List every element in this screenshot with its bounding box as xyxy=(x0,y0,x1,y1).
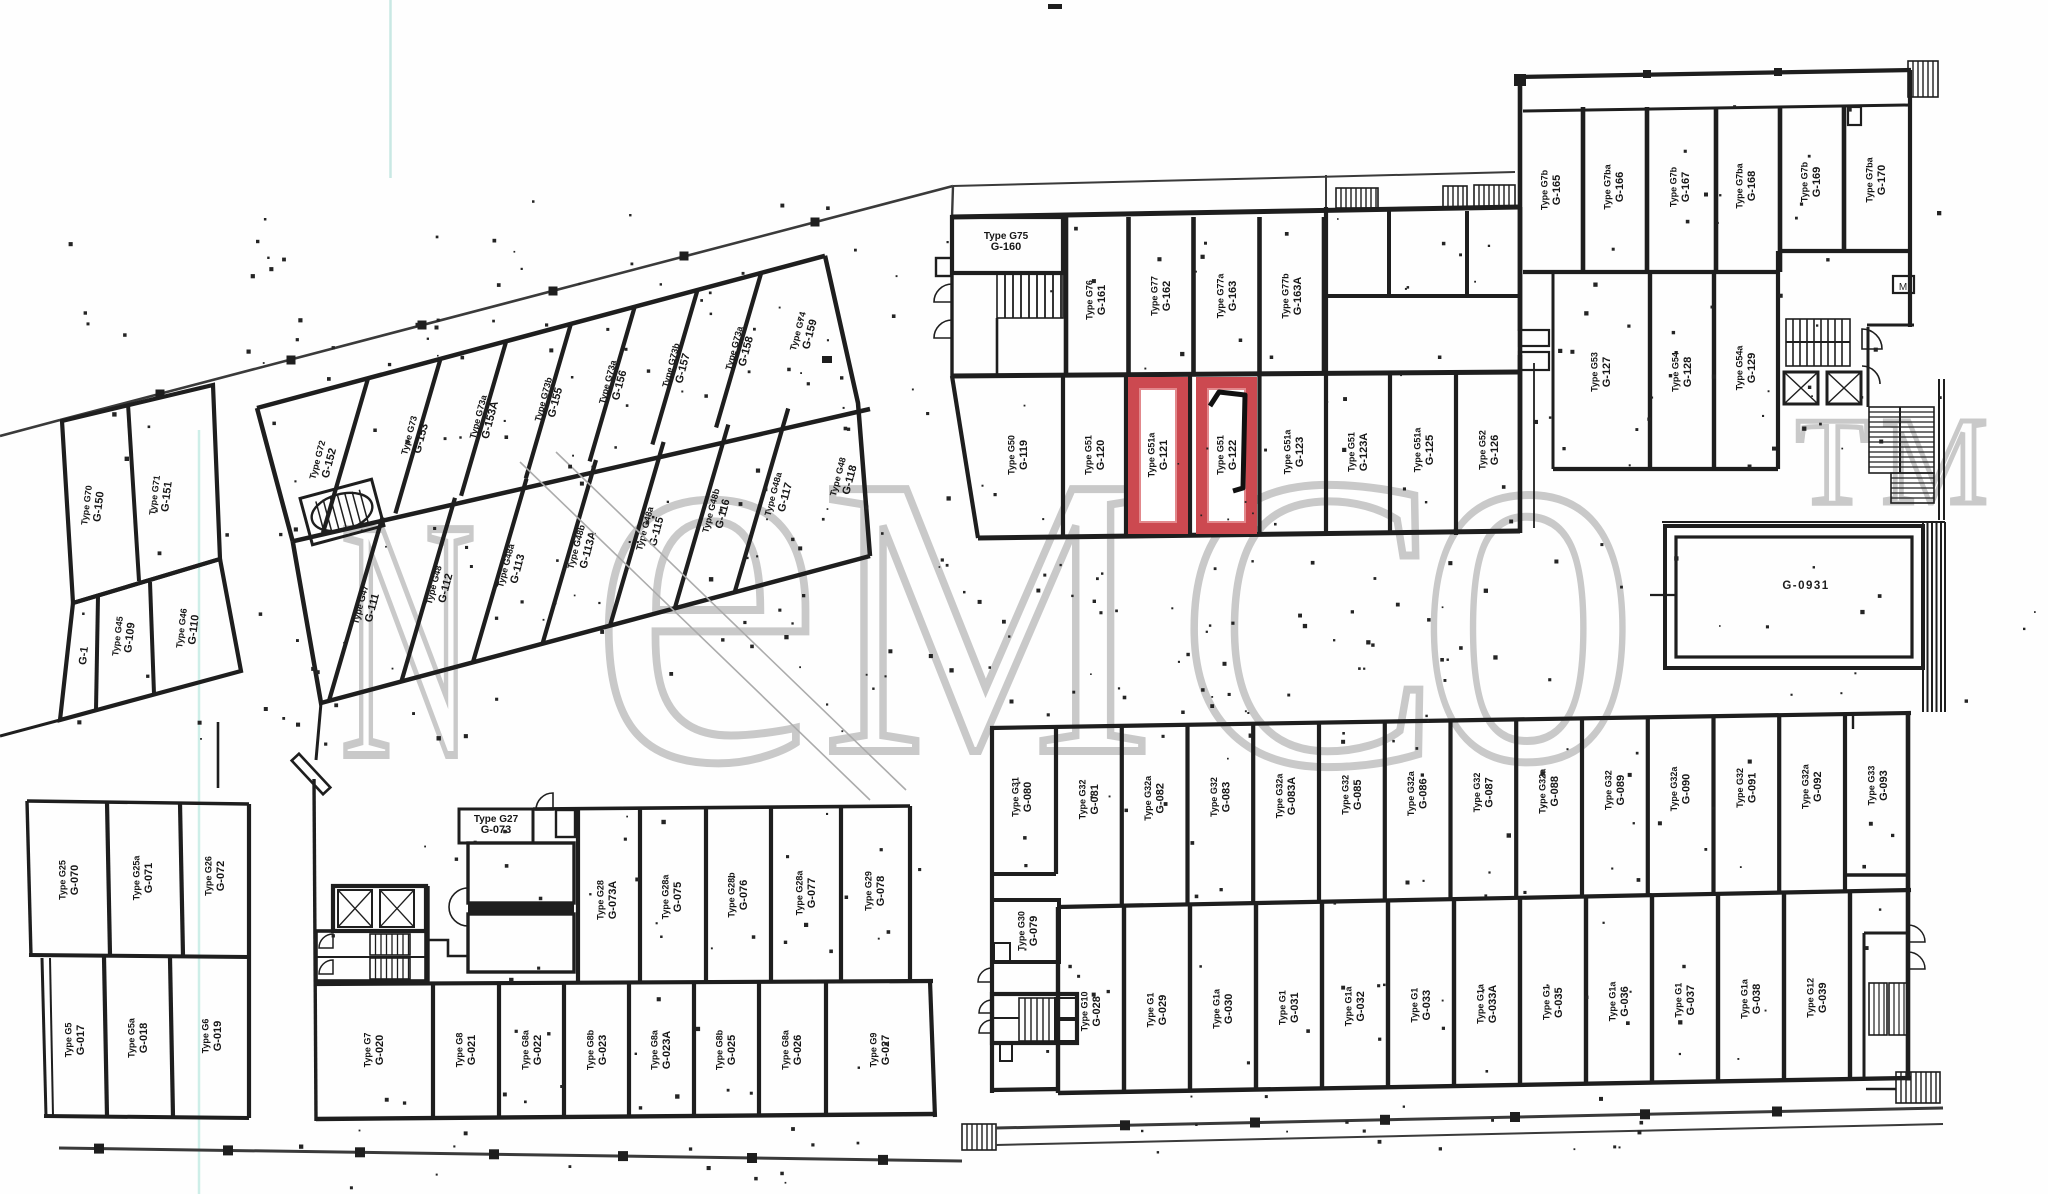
svg-text:Type G7b: Type G7b xyxy=(1540,169,1550,210)
svg-text:Type G7b: Type G7b xyxy=(1800,161,1810,202)
svg-text:G-087: G-087 xyxy=(1483,777,1495,808)
svg-text:G-126: G-126 xyxy=(1489,435,1501,466)
svg-text:Type G7b: Type G7b xyxy=(1669,166,1679,207)
svg-text:G-072: G-072 xyxy=(215,861,227,892)
svg-text:G-026: G-026 xyxy=(792,1035,804,1066)
svg-text:Type G1a: Type G1a xyxy=(1608,981,1618,1022)
svg-text:Type G32a: Type G32a xyxy=(1143,775,1153,821)
svg-text:G-029: G-029 xyxy=(1157,995,1169,1026)
svg-text:Type G25: Type G25 xyxy=(58,860,68,900)
svg-text:G-027: G-027 xyxy=(880,1035,892,1066)
svg-text:G-073A: G-073A xyxy=(607,881,619,920)
svg-text:G-083A: G-083A xyxy=(1286,777,1298,816)
svg-text:Type G25a: Type G25a xyxy=(132,855,142,901)
svg-text:Type G26: Type G26 xyxy=(204,856,214,896)
svg-text:G-163: G-163 xyxy=(1227,281,1239,312)
svg-text:G-090: G-090 xyxy=(1681,774,1693,805)
svg-text:G-032: G-032 xyxy=(1355,991,1367,1022)
svg-text:G-023: G-023 xyxy=(597,1035,609,1066)
svg-text:Type G1: Type G1 xyxy=(1278,990,1288,1025)
svg-text:G-028: G-028 xyxy=(1091,996,1103,1027)
svg-text:Type G52: Type G52 xyxy=(1478,430,1488,470)
svg-text:Type G1: Type G1 xyxy=(1542,985,1552,1020)
svg-text:Type G1: Type G1 xyxy=(1674,983,1684,1018)
svg-text:G-076: G-076 xyxy=(738,880,750,911)
svg-text:G-081: G-081 xyxy=(1089,784,1101,815)
svg-text:Type G32: Type G32 xyxy=(1735,768,1745,808)
svg-text:G-020: G-020 xyxy=(374,1035,386,1066)
svg-text:G-120: G-120 xyxy=(1095,440,1107,471)
svg-text:Type G32a: Type G32a xyxy=(1275,773,1285,819)
svg-text:Type G8b: Type G8b xyxy=(586,1029,596,1070)
svg-text:G-128: G-128 xyxy=(1682,357,1694,388)
svg-text:G-162: G-162 xyxy=(1161,281,1173,312)
svg-text:G-122: G-122 xyxy=(1227,440,1239,471)
svg-text:Type G1: Type G1 xyxy=(1146,993,1156,1028)
svg-text:G-038: G-038 xyxy=(1751,984,1763,1015)
svg-text:G-121: G-121 xyxy=(1158,440,1170,471)
svg-text:Type G32a: Type G32a xyxy=(1406,770,1416,816)
svg-text:G-086: G-086 xyxy=(1418,778,1430,809)
svg-text:G-070: G-070 xyxy=(69,865,81,896)
svg-text:Type G10: Type G10 xyxy=(1080,991,1090,1031)
svg-text:Type G30: Type G30 xyxy=(1017,911,1027,951)
svg-text:Type G32: Type G32 xyxy=(1209,777,1219,817)
svg-text:Type G8b: Type G8b xyxy=(715,1029,725,1070)
svg-text:G-127: G-127 xyxy=(1601,357,1613,388)
svg-text:G-082: G-082 xyxy=(1155,783,1167,814)
svg-text:G-080: G-080 xyxy=(1022,782,1034,813)
svg-text:G-165: G-165 xyxy=(1551,175,1563,206)
svg-text:G-075: G-075 xyxy=(672,882,684,913)
svg-text:G-022: G-022 xyxy=(532,1035,544,1066)
svg-text:Type G7: Type G7 xyxy=(363,1033,373,1068)
svg-text:G-123: G-123 xyxy=(1294,437,1306,468)
svg-text:Type G51a: Type G51a xyxy=(1413,427,1423,473)
svg-text:G-123A: G-123A xyxy=(1358,433,1370,472)
svg-text:Type G1a: Type G1a xyxy=(1740,978,1750,1019)
svg-text:Type G77b: Type G77b xyxy=(1281,273,1291,319)
svg-text:Type G77a: Type G77a xyxy=(1216,273,1226,319)
svg-text:G-073: G-073 xyxy=(481,824,512,836)
svg-text:G-030: G-030 xyxy=(1223,994,1235,1025)
svg-text:Type G51a: Type G51a xyxy=(1147,432,1157,478)
svg-text:G-089: G-089 xyxy=(1615,775,1627,806)
svg-text:Type G32: Type G32 xyxy=(1077,779,1087,819)
svg-text:G-160: G-160 xyxy=(991,241,1022,253)
svg-text:G-078: G-078 xyxy=(875,876,887,907)
svg-text:G-088: G-088 xyxy=(1549,776,1561,807)
svg-text:G-017: G-017 xyxy=(75,1025,87,1056)
svg-text:Type G9: Type G9 xyxy=(869,1033,879,1068)
svg-text:G-023A: G-023A xyxy=(661,1031,673,1070)
svg-text:G-125: G-125 xyxy=(1424,435,1436,466)
svg-text:G-091: G-091 xyxy=(1746,773,1758,804)
svg-text:G-166: G-166 xyxy=(1614,172,1626,203)
svg-text:Type G5a: Type G5a xyxy=(127,1017,137,1058)
svg-text:G-033: G-033 xyxy=(1421,990,1433,1021)
svg-text:G-129: G-129 xyxy=(1746,353,1758,384)
svg-text:G-1: G-1 xyxy=(77,646,91,666)
svg-text:G-039: G-039 xyxy=(1817,983,1829,1014)
svg-text:G-169: G-169 xyxy=(1811,167,1823,198)
svg-text:Type G76: Type G76 xyxy=(1085,280,1095,320)
svg-text:Type G32: Type G32 xyxy=(1603,770,1613,810)
svg-text:Type G29: Type G29 xyxy=(864,871,874,911)
svg-text:Type G7ba: Type G7ba xyxy=(1603,163,1613,209)
svg-text:G-019: G-019 xyxy=(212,1021,224,1052)
svg-text:G-092: G-092 xyxy=(1812,771,1824,802)
svg-text:G-119: G-119 xyxy=(1018,440,1030,470)
svg-text:G-071: G-071 xyxy=(143,863,155,894)
svg-text:G-025: G-025 xyxy=(726,1035,738,1066)
svg-text:Type G32a: Type G32a xyxy=(1669,766,1679,812)
svg-text:Type G1: Type G1 xyxy=(1410,988,1420,1023)
svg-text:G-018: G-018 xyxy=(138,1023,150,1054)
svg-text:G-083: G-083 xyxy=(1220,782,1232,813)
svg-text:G-035: G-035 xyxy=(1553,987,1565,1018)
svg-text:Type G28a: Type G28a xyxy=(795,870,805,916)
svg-text:G-0931: G-0931 xyxy=(1782,580,1829,592)
svg-text:G-161: G-161 xyxy=(1096,285,1108,316)
svg-text:Type G8: Type G8 xyxy=(455,1033,465,1068)
svg-text:Type G28b: Type G28b xyxy=(727,872,737,918)
svg-text:G-079: G-079 xyxy=(1028,916,1040,947)
svg-text:Type G51: Type G51 xyxy=(1216,435,1226,475)
svg-text:M: M xyxy=(1899,282,1907,293)
svg-text:Type G8a: Type G8a xyxy=(521,1029,531,1070)
svg-text:Type G28: Type G28 xyxy=(596,880,606,920)
svg-text:G-093: G-093 xyxy=(1878,770,1890,801)
svg-text:Type G7ba: Type G7ba xyxy=(1865,156,1875,202)
svg-text:Type G8a: Type G8a xyxy=(781,1029,791,1070)
svg-text:Type G32: Type G32 xyxy=(1340,775,1350,815)
svg-text:Type G5: Type G5 xyxy=(64,1023,74,1058)
svg-text:G-168: G-168 xyxy=(1746,171,1758,202)
svg-text:Type G51: Type G51 xyxy=(1347,432,1357,472)
svg-text:Type G33: Type G33 xyxy=(1867,766,1877,806)
svg-text:G-036: G-036 xyxy=(1619,986,1631,1017)
svg-text:Type G54: Type G54 xyxy=(1671,352,1681,392)
svg-text:Type G77: Type G77 xyxy=(1150,276,1160,316)
svg-text:Type G28a: Type G28a xyxy=(661,874,671,920)
svg-text:Type G32: Type G32 xyxy=(1472,773,1482,813)
svg-text:G-085: G-085 xyxy=(1352,780,1364,811)
svg-text:G-031: G-031 xyxy=(1289,992,1301,1023)
svg-text:G-077: G-077 xyxy=(806,878,818,909)
svg-text:G-033A: G-033A xyxy=(1487,985,1499,1024)
svg-text:Type G51a: Type G51a xyxy=(1283,429,1293,475)
svg-text:Type G8a: Type G8a xyxy=(650,1029,660,1070)
svg-text:Type G6: Type G6 xyxy=(201,1019,211,1054)
svg-text:Type G12: Type G12 xyxy=(1806,978,1816,1018)
svg-text:G-167: G-167 xyxy=(1680,172,1692,203)
svg-text:G-037: G-037 xyxy=(1685,985,1697,1016)
svg-text:G-170: G-170 xyxy=(1876,165,1888,196)
svg-text:Type G7ba: Type G7ba xyxy=(1735,162,1745,208)
svg-text:Type G1a: Type G1a xyxy=(1212,988,1222,1029)
svg-text:Type G53: Type G53 xyxy=(1590,352,1600,392)
svg-text:Type G32a: Type G32a xyxy=(1801,763,1811,809)
svg-text:Type G1a: Type G1a xyxy=(1344,985,1354,1026)
svg-text:G-163A: G-163A xyxy=(1292,277,1304,316)
svg-text:Type G54a: Type G54a xyxy=(1735,345,1745,391)
svg-text:G-021: G-021 xyxy=(466,1035,478,1066)
svg-text:Type G51: Type G51 xyxy=(1084,435,1094,475)
svg-text:Type G50: Type G50 xyxy=(1007,435,1017,475)
